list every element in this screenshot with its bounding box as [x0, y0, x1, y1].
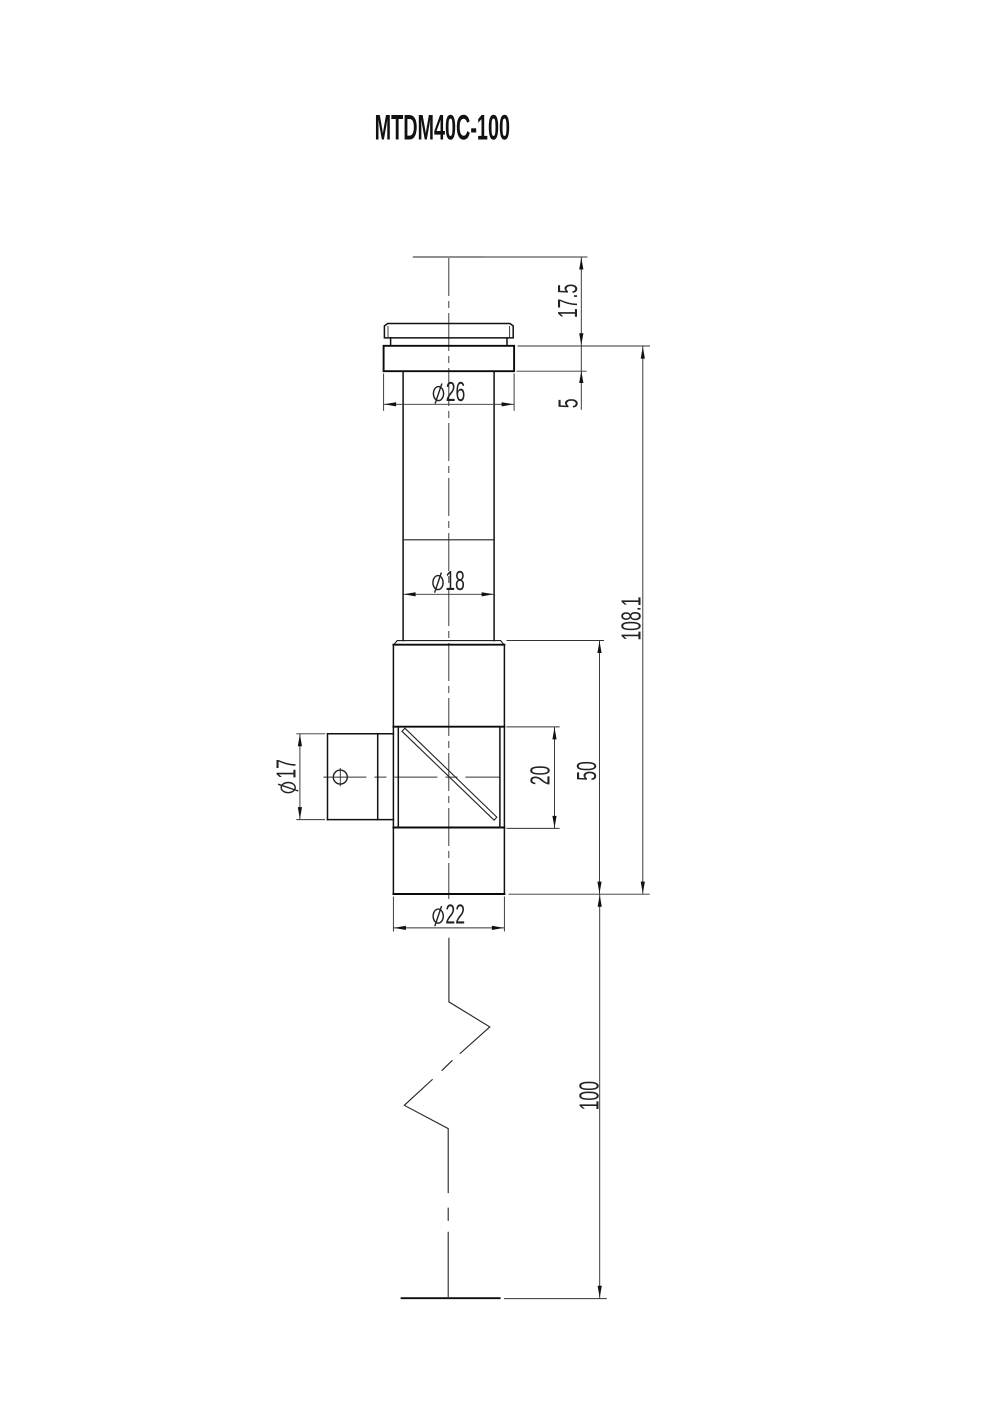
- svg-text:20: 20: [524, 766, 555, 786]
- svg-text:26: 26: [446, 376, 466, 407]
- svg-text:50: 50: [571, 761, 602, 781]
- svg-text:22: 22: [445, 898, 465, 929]
- svg-text:18: 18: [445, 565, 465, 596]
- svg-text:17.5: 17.5: [552, 284, 583, 318]
- svg-text:17: 17: [270, 759, 301, 779]
- svg-text:MTDM40C-100: MTDM40C-100: [375, 109, 510, 148]
- svg-text:5: 5: [552, 398, 583, 408]
- svg-text:100: 100: [573, 1081, 604, 1110]
- svg-text:108.1: 108.1: [615, 597, 646, 641]
